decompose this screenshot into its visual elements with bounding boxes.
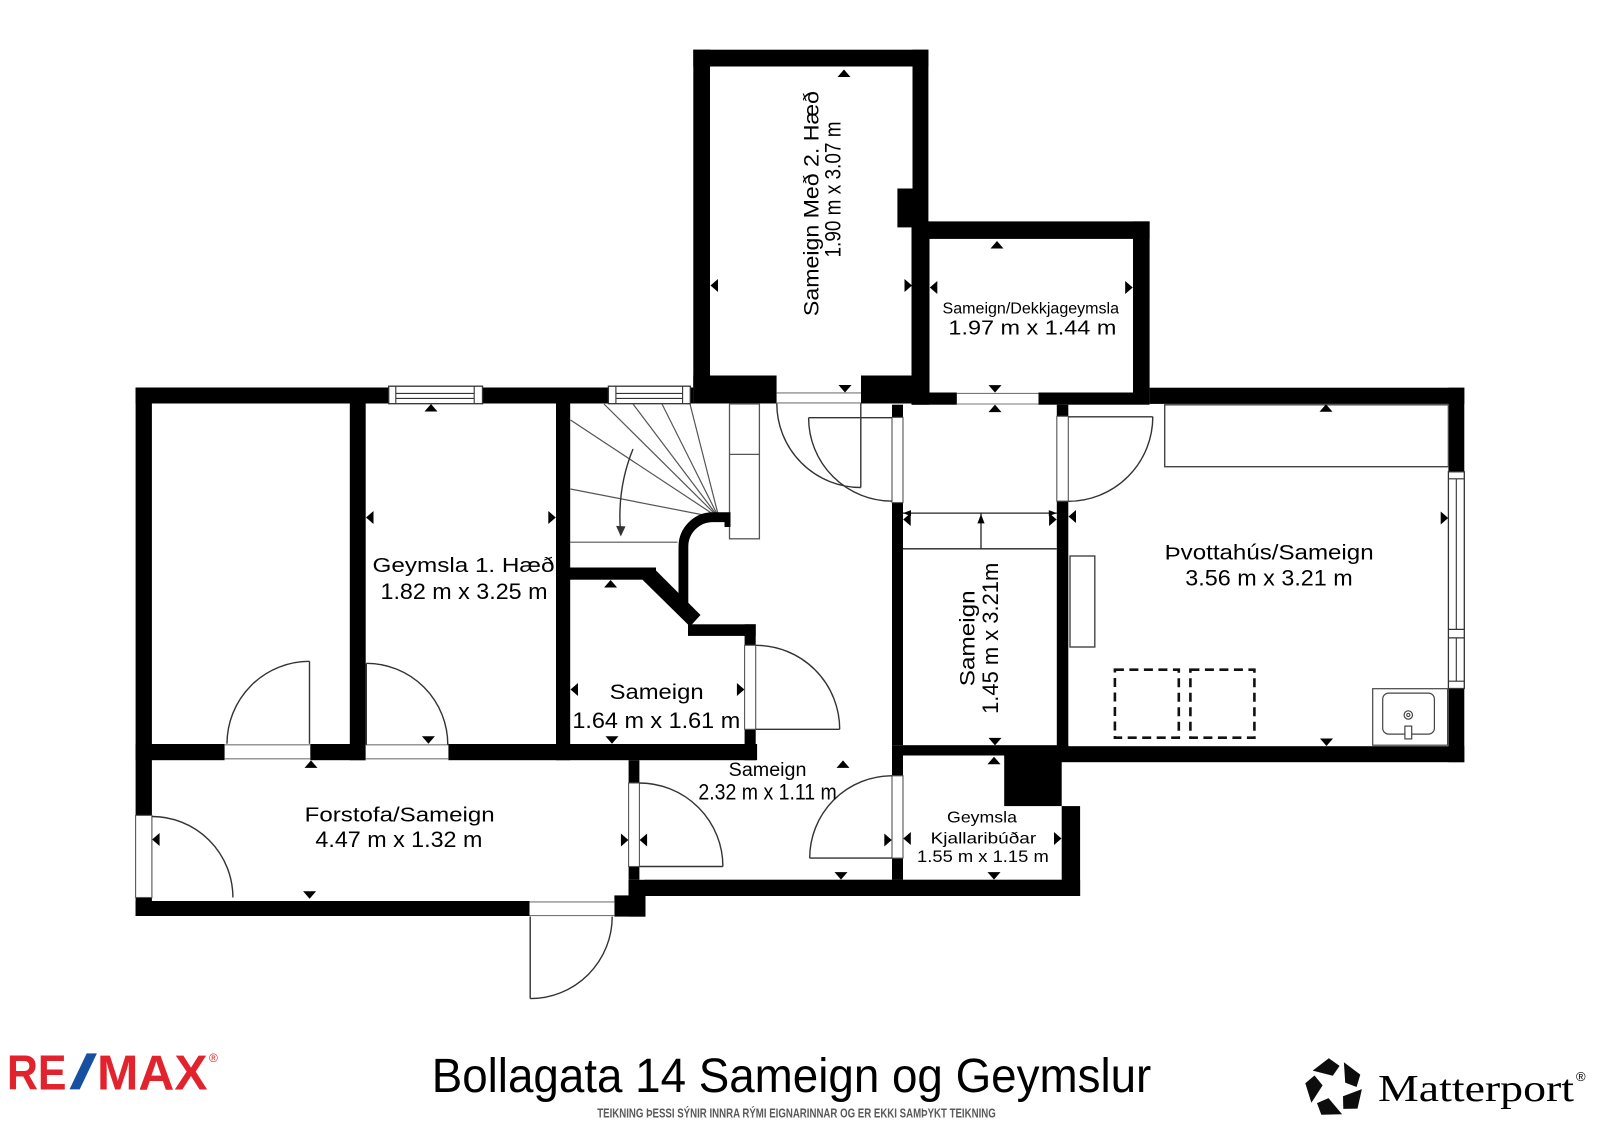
- svg-text:1.55 m x 1.15 m: 1.55 m x 1.15 m: [917, 847, 1049, 866]
- svg-text:Matterport: Matterport: [1378, 1068, 1574, 1110]
- svg-text:1.90 m x 3.07 m: 1.90 m x 3.07 m: [820, 122, 845, 258]
- svg-text:TEIKNING ÞESSI SÝNIR INNRA RÝM: TEIKNING ÞESSI SÝNIR INNRA RÝMI EIGNARIN…: [597, 1106, 996, 1121]
- svg-text:Sameign: Sameign: [956, 590, 980, 686]
- svg-text:1.45 m x 3.21m: 1.45 m x 3.21m: [978, 563, 1003, 714]
- svg-text:1.82 m x 3.25 m: 1.82 m x 3.25 m: [381, 579, 548, 604]
- svg-text:Geymsla: Geymsla: [947, 810, 1017, 827]
- svg-text:Forstofa/Sameign: Forstofa/Sameign: [305, 803, 495, 826]
- svg-text:Þvottahús/Sameign: Þvottahús/Sameign: [1165, 541, 1374, 564]
- svg-text:1.97 m x 1.44 m: 1.97 m x 1.44 m: [948, 316, 1116, 339]
- svg-text:3.56 m x 3.21 m: 3.56 m x 3.21 m: [1185, 566, 1353, 591]
- svg-text:MAX: MAX: [97, 1046, 208, 1100]
- svg-text:Sameign: Sameign: [610, 680, 704, 704]
- svg-text:Sameign: Sameign: [729, 760, 807, 781]
- svg-text:Bollagata 14 Sameign og Geymsl: Bollagata 14 Sameign og Geymslur: [432, 1050, 1152, 1103]
- svg-text:Kjallaribúðar: Kjallaribúðar: [931, 831, 1037, 848]
- svg-text:1.64 m x 1.61 m: 1.64 m x 1.61 m: [572, 708, 740, 733]
- svg-text:RE: RE: [7, 1046, 67, 1100]
- svg-text:2.32 m x 1.11 m: 2.32 m x 1.11 m: [698, 780, 836, 805]
- svg-text:®: ®: [209, 1051, 218, 1065]
- svg-text:4.47 m x 1.32 m: 4.47 m x 1.32 m: [315, 827, 482, 852]
- svg-text:Sameign/Dekkjageymsla: Sameign/Dekkjageymsla: [943, 300, 1120, 317]
- svg-text:Geymsla 1. Hæð: Geymsla 1. Hæð: [373, 555, 555, 577]
- svg-text:®: ®: [1576, 1069, 1586, 1084]
